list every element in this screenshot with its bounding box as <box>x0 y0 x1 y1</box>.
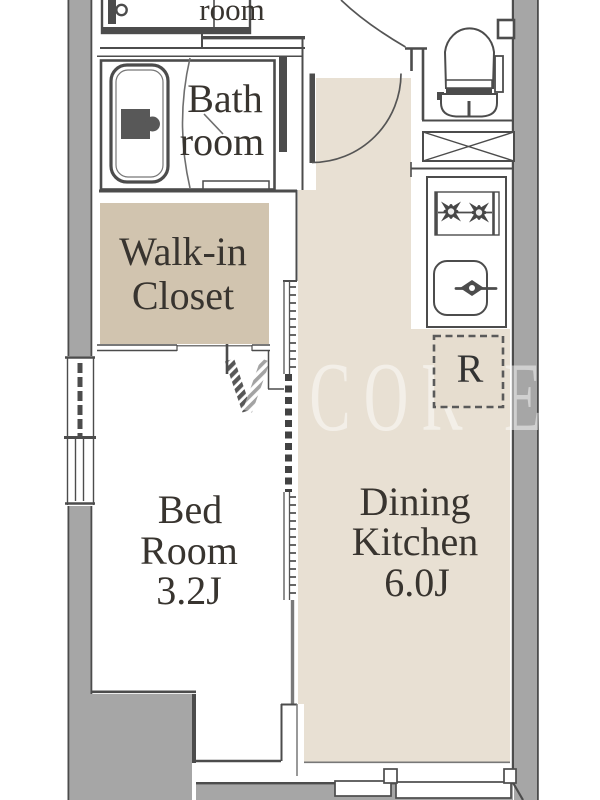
svg-text:Dining: Dining <box>359 479 470 524</box>
svg-text:6.0J: 6.0J <box>384 560 450 605</box>
svg-text:E: E <box>504 343 542 452</box>
svg-text:O: O <box>364 343 409 452</box>
svg-text:Closet: Closet <box>132 273 234 318</box>
svg-text:Bed: Bed <box>158 487 222 532</box>
svg-text:R: R <box>457 346 484 391</box>
svg-text:Kitchen: Kitchen <box>352 519 479 564</box>
svg-text:C: C <box>309 343 350 452</box>
svg-text:Walk-in: Walk-in <box>119 229 247 274</box>
svg-text:Room: Room <box>140 528 238 573</box>
svg-text:room: room <box>199 0 264 27</box>
svg-text:Bath: Bath <box>187 76 263 121</box>
svg-text:room: room <box>180 119 264 164</box>
svg-text:3.2J: 3.2J <box>156 568 222 613</box>
